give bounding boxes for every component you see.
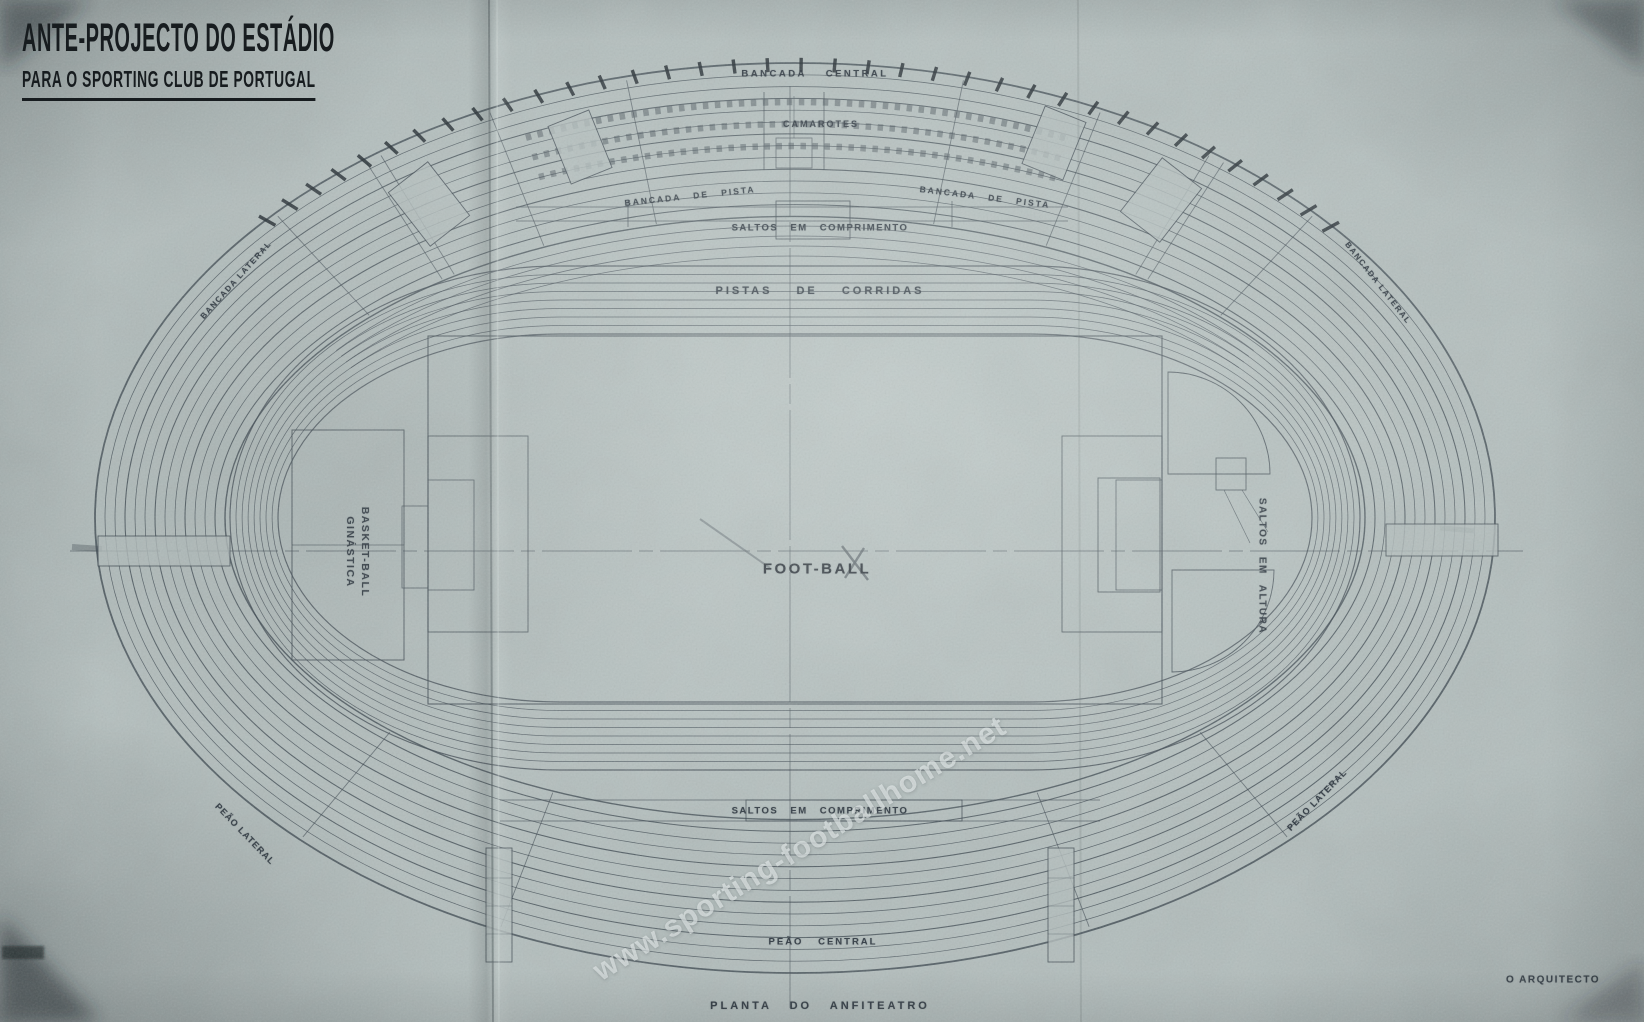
- label-saltos-em-altura: SALTOS EM ALTURA: [1257, 498, 1268, 634]
- page-title: ANTE-PROJECTO DO ESTÁDIO: [22, 16, 335, 61]
- label-saltos-em-comprimento-top: SALTOS EM COMPRIMENTO: [732, 223, 909, 234]
- label-bancada-central: BANCADA CENTRAL: [741, 69, 888, 80]
- label-peao-lateral-right: PEÃO LATERAL: [1285, 767, 1349, 832]
- label-pistas-de-corridas: PISTAS DE CORRIDAS: [716, 285, 925, 297]
- label-basket-ball: BASKET-BALL: [357, 507, 372, 598]
- label-bancada-lateral-left: BANCADA LATERAL: [199, 239, 274, 321]
- label-peao-lateral-left: PEÃO LATERAL: [213, 801, 277, 866]
- label-bancada-lateral-right: BANCADA LATERAL: [1343, 240, 1413, 326]
- label-ginastica: GINÁSTICA: [342, 507, 357, 598]
- label-bancada-de-pista-right: BANCADA DE PISTA: [919, 184, 1051, 210]
- label-bancada-de-pista-left: BANCADA DE PISTA: [624, 184, 756, 208]
- label-planta-do-anfiteatro: PLANTA DO ANFITEATRO: [710, 1000, 930, 1012]
- plan-labels-layer: BANCADA CENTRAL CAMAROTES BANCADA DE PIS…: [0, 0, 1644, 1022]
- label-o-arquitecto: O ARQUITECTO: [1506, 975, 1600, 986]
- label-camarotes: CAMAROTES: [783, 119, 859, 129]
- label-peao-central: PEÃO CENTRAL: [769, 937, 878, 948]
- label-foot-ball: FOOT-BALL: [763, 561, 871, 578]
- label-basket-ball-ginastica: BASKET-BALL GINÁSTICA: [342, 507, 372, 598]
- blueprint-photo: BANCADA CENTRAL CAMAROTES BANCADA DE PIS…: [0, 0, 1644, 1022]
- page-subtitle: PARA O SPORTING CLUB DE PORTUGAL: [22, 66, 316, 101]
